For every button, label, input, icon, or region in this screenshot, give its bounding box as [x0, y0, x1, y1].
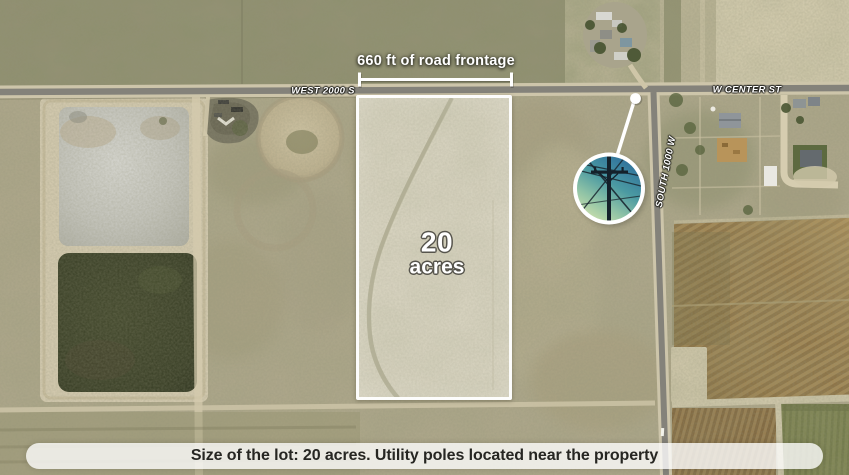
caption-text: Size of the lot: 20 acres. Utility poles…: [191, 447, 658, 465]
utility-pole-photo: [573, 153, 647, 228]
caption-bar: Size of the lot: 20 acres. Utility poles…: [26, 443, 823, 469]
lot-size-label: 20 acres: [410, 230, 465, 279]
lot-size-number: 20: [410, 230, 465, 256]
leader-line: [617, 100, 635, 156]
frontage-label: 660 ft of road frontage: [357, 53, 515, 69]
lot-aerial-graphic: 660 ft of road frontage WEST 2000 S W CE…: [0, 0, 849, 475]
lot-size-unit: acres: [410, 256, 465, 279]
frontage-bracket: [360, 73, 513, 88]
road-label-w-center-st: W CENTER ST: [713, 85, 782, 96]
road-label-west-2000-s: WEST 2000 S: [291, 86, 355, 97]
